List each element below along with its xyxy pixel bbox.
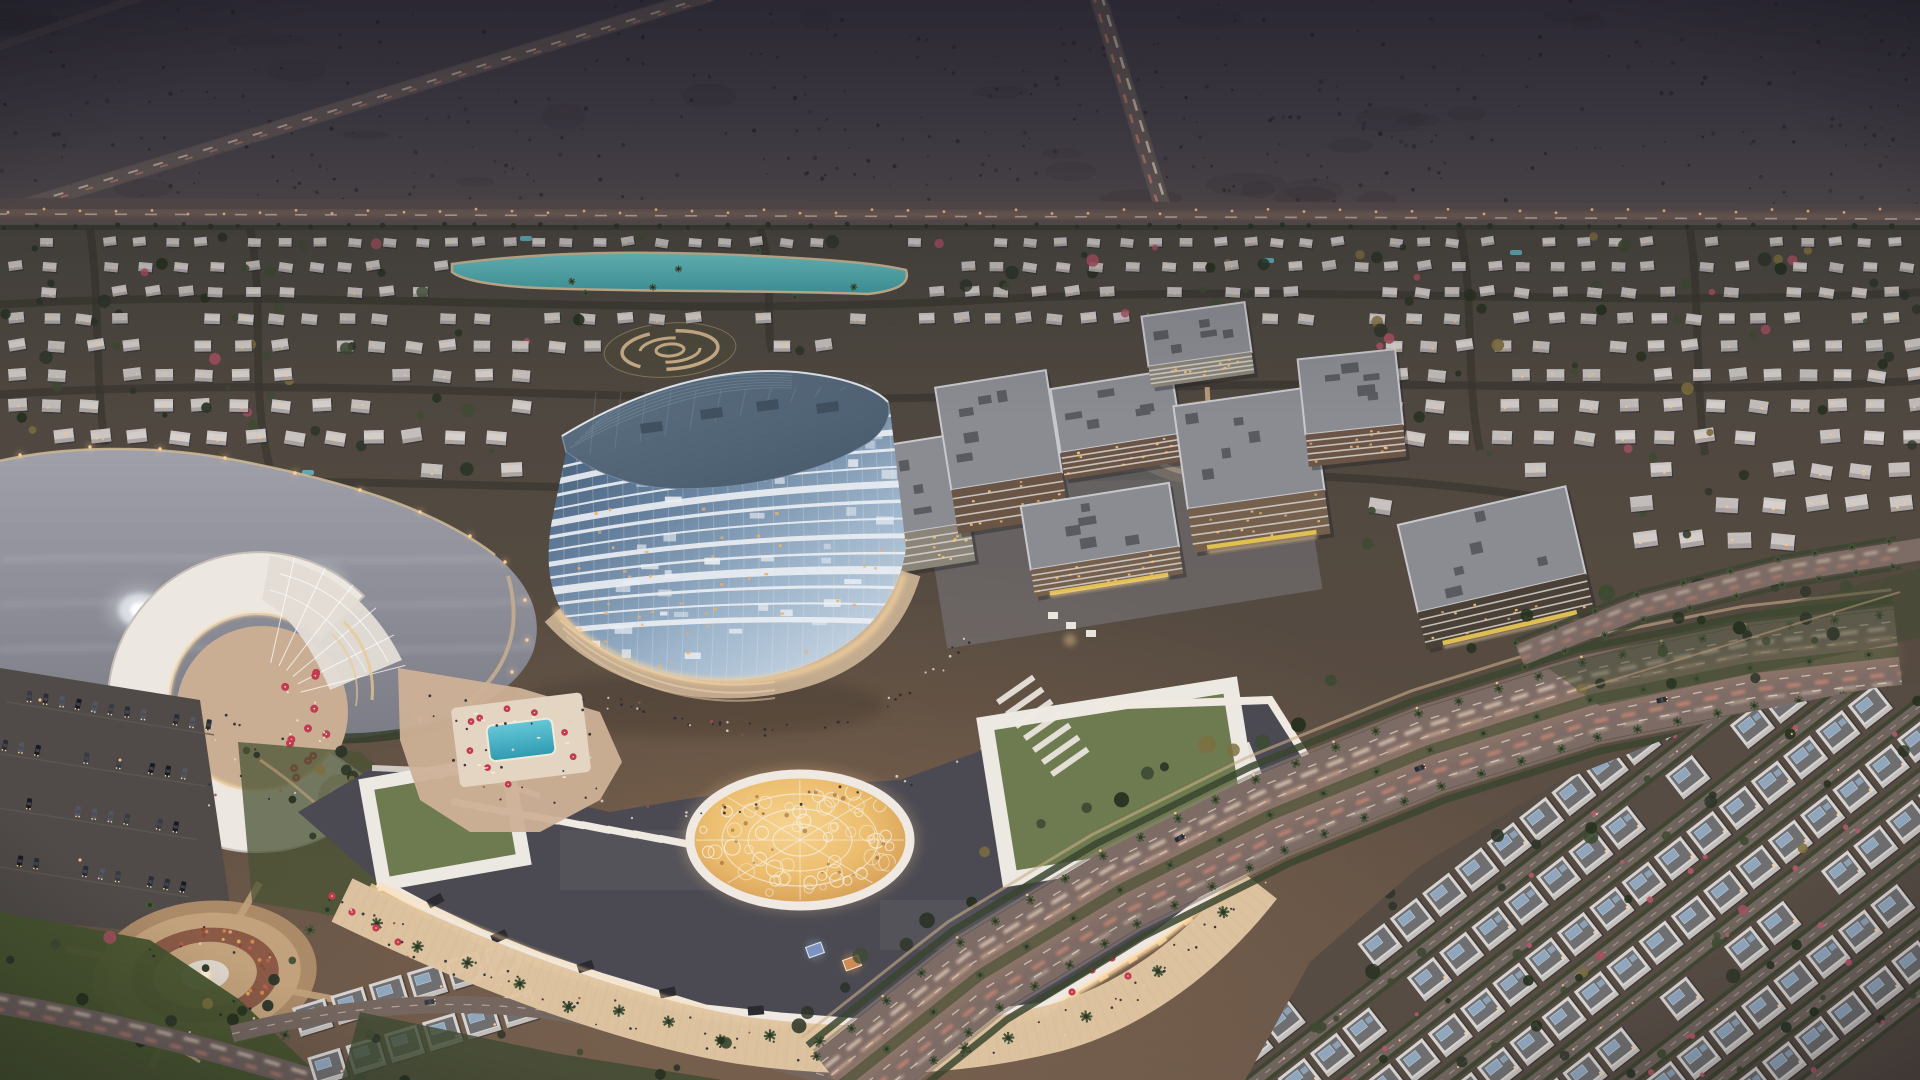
aerial-rendering-stage <box>0 0 1920 1080</box>
aerial-rendering <box>0 0 1920 1080</box>
